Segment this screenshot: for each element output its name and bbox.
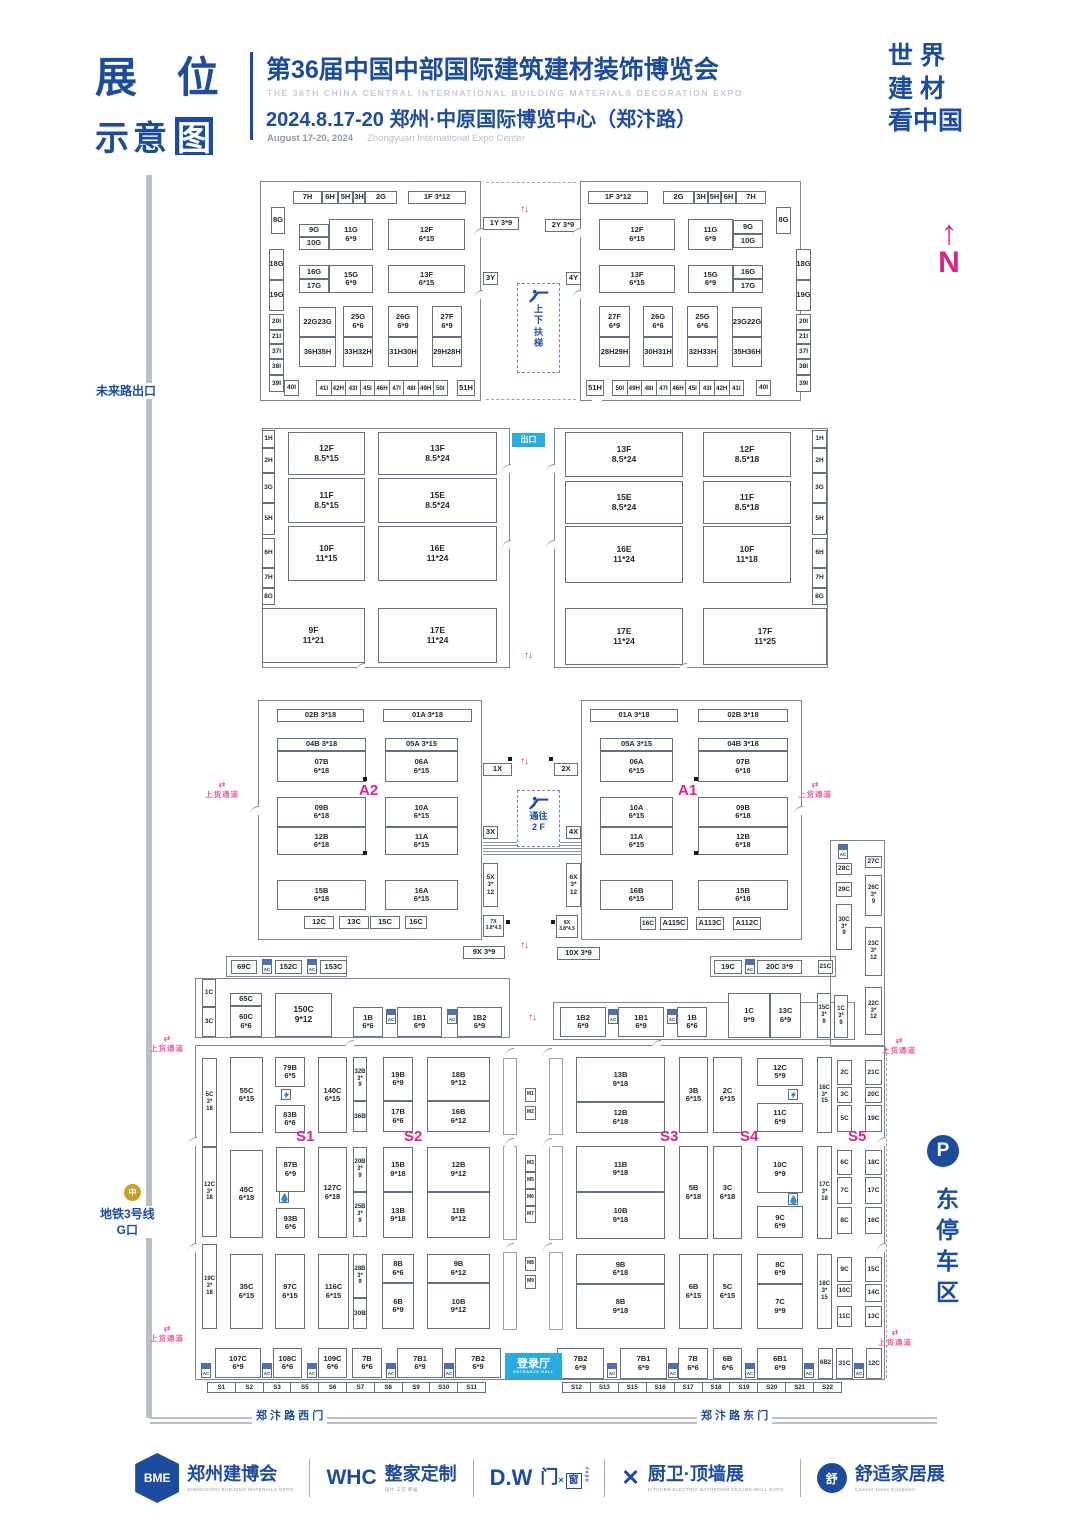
booth-7h: 7H xyxy=(736,191,766,204)
booth-45i: 45I xyxy=(685,380,701,396)
booth-69c: 69C xyxy=(231,960,257,974)
updown-arrows-icon: ↑↓ xyxy=(520,204,528,215)
sign-sublabel: ENTRANCE HALL xyxy=(513,1370,554,1374)
booth-8c: 8C xyxy=(837,1207,852,1234)
footer-logo-x: ✕厨卫·顶墙展KITCHEN ELECTRIC BATHROOM CEILING… xyxy=(621,1464,783,1492)
booth-49h: 49H xyxy=(418,380,434,396)
booth-6x: 6X 3* 12 xyxy=(566,863,581,907)
booth-21i: 21I xyxy=(796,330,811,344)
power-icon xyxy=(281,1089,291,1100)
booth-s21: S21 xyxy=(785,1382,814,1393)
booth-65c: 65C xyxy=(230,993,262,1006)
booth-40i: 40I xyxy=(756,380,771,396)
ac-unit-icon: AC xyxy=(386,1363,396,1378)
booth-25g: 25G 6*6 xyxy=(687,306,718,337)
booth-05a-3-15: 05A 3*15 xyxy=(385,738,458,751)
booth-51h: 51H xyxy=(586,380,604,396)
zone-label: A2 xyxy=(359,782,378,799)
booth-50i: 50I xyxy=(433,380,449,396)
booth-01a-3-18: 01A 3*18 xyxy=(590,709,678,722)
booth-15c: 15C xyxy=(865,1257,882,1282)
booth-row: S12S13S15S16S17S18S19S20S21S22 xyxy=(563,1382,842,1393)
booth-16g: 16G xyxy=(299,265,329,279)
map-label: 未来路出口 xyxy=(92,383,160,399)
booth-1b: 1B 6*6 xyxy=(677,1007,707,1037)
booth-3h: 3H xyxy=(694,191,708,204)
booth-10x-3-9: 10X 3*9 xyxy=(557,947,600,960)
freight-aisle-label: ⇄上货通道 xyxy=(150,1324,184,1343)
booth-5x: 5X 3* 12 xyxy=(483,863,498,907)
escalator-box: 通往 2 F xyxy=(517,790,560,847)
dw-logo-text: D.W xyxy=(490,1465,533,1491)
pillar xyxy=(363,851,367,855)
booth-1b2: 1B2 6*9 xyxy=(457,1007,502,1037)
freight-aisle-label: ⇄上货通道 xyxy=(150,1034,184,1053)
booth-6c: 6C xyxy=(837,1150,852,1175)
booth-107c: 107C 6*9 xyxy=(215,1348,261,1378)
ac-unit-icon: AC xyxy=(854,1363,864,1378)
booth-3x: 3X xyxy=(483,826,498,839)
booth-11f: 11F 8.5*18 xyxy=(703,481,791,524)
ac-unit-icon: AC xyxy=(307,959,317,974)
booth-2g: 2G xyxy=(365,191,397,204)
bme-logo-icon: BME xyxy=(135,1453,179,1503)
booth-48i: 48I xyxy=(641,380,657,396)
booth-m8: M8 xyxy=(525,1257,536,1271)
booth-s12: S12 xyxy=(562,1382,591,1393)
booth-7c: 7C xyxy=(837,1177,852,1204)
booth-2h: 2H xyxy=(812,448,827,473)
booth-9b: 9B 6*18 xyxy=(576,1254,665,1284)
footer-logo-subtext: 设计 工艺 新居 xyxy=(385,1487,457,1492)
door-arc-icon xyxy=(546,540,555,549)
booth-13c: 13C xyxy=(339,916,369,929)
booth-09b: 09B 6*18 xyxy=(277,797,366,827)
booth-10b: 10B 9*12 xyxy=(427,1283,490,1329)
ac-unit-icon: AC xyxy=(447,1009,457,1024)
booth-22g23g: 22G23G xyxy=(299,307,336,337)
booth-12f: 12F 6*15 xyxy=(599,219,675,250)
booth-16e: 16E 11*24 xyxy=(378,526,497,581)
booth-2x: 2X xyxy=(554,763,578,776)
booth-42h: 42H xyxy=(331,380,347,396)
ac-unit-icon: AC xyxy=(745,959,755,974)
booth-5h: 5H xyxy=(338,191,353,204)
booth-s6: S6 xyxy=(318,1382,347,1393)
ac-unit-icon: AC xyxy=(745,1363,755,1378)
toilet-icon xyxy=(592,400,602,402)
booth-12f: 12F 8.5*15 xyxy=(288,432,365,475)
booth-17c: 17C xyxy=(865,1177,882,1204)
booth-9x-3-9: 9X 3*9 xyxy=(463,946,505,959)
booth-116c: 116C 6*15 xyxy=(318,1254,349,1329)
freight-label-text: 上货通道 xyxy=(150,1334,184,1343)
booth-7h: 7H xyxy=(293,191,322,204)
booth-06a: 06A 6*15 xyxy=(600,751,673,782)
booth-1b2: 1B2 6*9 xyxy=(560,1007,606,1037)
booth-20c: 20C xyxy=(865,1087,882,1103)
booth-41i: 41I xyxy=(316,380,332,396)
booth-11c: 11C 6*9 xyxy=(757,1103,803,1132)
toilet-icon xyxy=(442,398,452,400)
booth-29c: 29C xyxy=(836,882,852,897)
booth-25b: 25B 3* 9 xyxy=(353,1192,367,1237)
floor-plan-page: 展 位 示意图 第36届中国中部国际建筑建材装饰博览会 THE 36TH CHI… xyxy=(0,0,1080,1527)
booth-7x: 7X 3.8*4.5 xyxy=(483,915,504,937)
booth-s3: S3 xyxy=(263,1382,292,1393)
booth-17c: 17C 3* 18 xyxy=(817,1146,832,1239)
booth-26c: 26C 3* 9 xyxy=(865,875,882,916)
door-arc-icon xyxy=(345,1040,354,1049)
booth-27c: 27C xyxy=(865,856,882,868)
booth-6b2: 6B2 xyxy=(818,1348,833,1379)
booth-1h: 1H xyxy=(812,430,827,448)
booth-7b: 7B 6*6 xyxy=(678,1348,708,1379)
booth-36b: 36B xyxy=(353,1101,367,1132)
booth-39i: 39I xyxy=(796,375,811,392)
pillar xyxy=(508,757,512,761)
booth-s16: S16 xyxy=(646,1382,675,1393)
booth-12f: 12F 6*15 xyxy=(388,219,465,250)
freight-aisle-label: ⇄上货通道 xyxy=(798,780,832,799)
booth-10f: 10F 11*18 xyxy=(703,526,791,583)
booth-17e: 17E 11*24 xyxy=(565,608,683,665)
map-label: 郑 汴 路 西 门 xyxy=(252,1409,327,1424)
footer-logo-dw: D.W门×窗expo xyxy=(490,1465,589,1491)
ac-unit-icon: AC xyxy=(667,1009,677,1024)
booth-23g22g: 23G22G xyxy=(732,307,762,337)
booth-152c: 152C xyxy=(275,960,302,974)
booth-49h: 49H xyxy=(627,380,643,396)
booth-1c: 1C xyxy=(202,979,216,1007)
booth-18g: 18G xyxy=(269,249,284,280)
parking-icon: P xyxy=(927,1135,959,1167)
booth-a113c: A113C xyxy=(696,917,724,930)
booth-9c: 9C 6*9 xyxy=(757,1206,803,1238)
footer-divider xyxy=(800,1459,801,1497)
footer-logo-whc: WHC整家定制设计 工艺 新居 xyxy=(326,1464,456,1492)
water-icon xyxy=(279,1191,289,1203)
power-icon xyxy=(788,1089,798,1100)
booth-20c-3-9: 20C 3*9 xyxy=(757,960,802,974)
footer-divider xyxy=(473,1459,474,1497)
booth-28h29h: 28H29H xyxy=(599,337,630,367)
booth-15e: 15E 8.5*24 xyxy=(378,478,497,523)
water-icon xyxy=(788,1193,798,1205)
booth-7b2: 7B2 6*9 xyxy=(455,1348,501,1378)
booth-07b: 07B 6*18 xyxy=(277,751,366,782)
booth-127c: 127C 6*18 xyxy=(318,1147,347,1238)
corridor xyxy=(549,1252,563,1330)
booth-21i: 21I xyxy=(269,330,284,344)
booth-a115c: A115C xyxy=(660,917,688,930)
corridor xyxy=(549,1058,563,1135)
booth-9f: 9F 11*21 xyxy=(262,608,365,663)
booth-11f: 11F 8.5*15 xyxy=(288,478,365,523)
booth-26g: 26G 6*6 xyxy=(643,306,673,337)
pillar xyxy=(506,920,510,924)
booth-16b: 16B 6*15 xyxy=(600,880,673,910)
booth-37i: 37I xyxy=(796,344,811,359)
footer-logo-subtext: Comfort Home Exhibition xyxy=(855,1487,945,1492)
booth-28b: 28B 3* 9 xyxy=(353,1254,367,1298)
booth-01a-3-18: 01A 3*18 xyxy=(383,709,472,722)
booth-13f: 13F 8.5*24 xyxy=(565,432,683,477)
booth-109c: 109C 6*6 xyxy=(318,1348,347,1378)
booth-19g: 19G xyxy=(796,280,811,311)
map-label: 东 停 车 区 xyxy=(936,1184,959,1308)
booth-15g: 15G 6*9 xyxy=(329,265,373,293)
ac-unit-icon: AC xyxy=(262,959,272,974)
door-arc-icon xyxy=(188,1243,197,1252)
booth-16b: 16B 6*12 xyxy=(427,1101,490,1132)
booth-3g: 3G xyxy=(812,473,827,503)
booth-m3: M3 xyxy=(525,1155,536,1172)
zone-label: S5 xyxy=(848,1128,866,1145)
ac-unit-icon: AC xyxy=(804,1363,814,1378)
booth-21c: 21C xyxy=(865,1060,882,1085)
booth-8g: 8G xyxy=(812,588,827,605)
freight-arrows-icon: ⇄ xyxy=(150,1034,184,1044)
booth-2h: 2H xyxy=(262,448,275,473)
booth-33h32h: 33H32H xyxy=(343,337,373,367)
booth-s1: S1 xyxy=(207,1382,236,1393)
booth-1h: 1H xyxy=(262,430,275,448)
booth-60c: 60C 6*6 xyxy=(230,1006,262,1037)
freight-arrows-icon: ⇄ xyxy=(878,1328,912,1338)
freight-label-text: 上货通道 xyxy=(878,1338,912,1347)
updown-arrows-icon: ↑↓ xyxy=(520,940,528,951)
entrance-hall-sign: 登录厅ENTRANCE HALL xyxy=(505,1353,562,1379)
booth-32b: 32B 3* 9 xyxy=(353,1057,367,1101)
pillar xyxy=(551,920,555,924)
booth-02b-3-18: 02B 3*18 xyxy=(698,709,788,722)
booth-11a: 11A 6*15 xyxy=(600,827,673,855)
booth-13b: 13B 9*18 xyxy=(576,1057,665,1102)
booth-12b: 12B 6*18 xyxy=(576,1102,665,1133)
booth-8c: 8C 6*9 xyxy=(757,1254,803,1284)
booth-45c: 45C 6*18 xyxy=(230,1150,263,1238)
escalator-label: 上 下 扶 梯 xyxy=(534,304,543,349)
ac-unit-icon: AC xyxy=(201,1363,211,1378)
booth-s5: S5 xyxy=(290,1382,319,1393)
booth-row: S1S2S3S5S6S7S8S9S10S11 xyxy=(208,1382,486,1393)
freight-label-text: 上货通道 xyxy=(150,1044,184,1053)
escalator-box: 上 下 扶 梯 xyxy=(517,283,560,373)
pillar xyxy=(549,757,553,761)
booth-s7: S7 xyxy=(346,1382,375,1393)
booth-45i: 45I xyxy=(360,380,376,396)
booth-10a: 10A 6*15 xyxy=(600,797,673,827)
booth-23c: 23C 3* 12 xyxy=(865,927,882,976)
booth-1c: 1C 3* 9 xyxy=(834,995,848,1038)
booth-6h: 6H xyxy=(322,191,338,204)
ac-unit-icon: AC xyxy=(307,1363,317,1378)
toilet-icon xyxy=(631,683,641,685)
ac-unit-icon: AC xyxy=(608,1009,618,1024)
updown-arrows-icon: ↑↓ xyxy=(520,756,528,767)
booth-2c: 2C xyxy=(837,1060,852,1085)
booth-19c: 19C xyxy=(714,960,742,974)
booth-13c: 13C 6*9 xyxy=(770,993,801,1038)
whc-logo-text: WHC xyxy=(326,1466,376,1490)
booth-09b: 09B 6*18 xyxy=(698,797,788,827)
booth-1f-3-12: 1F 3*12 xyxy=(408,191,466,204)
booth-7h: 7H xyxy=(812,568,827,588)
home-logo-icon: 舒 xyxy=(817,1463,847,1493)
booth-10a: 10A 6*15 xyxy=(385,797,458,827)
booth-s11: S11 xyxy=(457,1382,486,1393)
booth-41i: 41I xyxy=(729,380,745,396)
booth-10c: 10C xyxy=(837,1284,852,1297)
booth-18c: 18C 3* 15 xyxy=(817,1254,832,1329)
booth-1x: 1X xyxy=(483,763,512,776)
ac-unit-icon: AC xyxy=(838,844,848,859)
booth-06a: 06A 6*15 xyxy=(385,751,458,782)
escalator-icon xyxy=(528,288,550,304)
booth-16c: 16C 3* 15 xyxy=(817,1057,832,1133)
pillar xyxy=(694,851,698,855)
booth-m1: M1 xyxy=(525,1088,536,1102)
booth-42h: 42H xyxy=(714,380,730,396)
booth-30b: 30B xyxy=(353,1298,367,1329)
booth-8g: 8G xyxy=(262,588,275,605)
booth-6h: 6H xyxy=(262,538,275,568)
booth-12c: 12C 5*9 xyxy=(757,1058,803,1086)
dw-expo-text: expo xyxy=(583,1467,589,1483)
booth-15c: 15C xyxy=(370,916,400,929)
booth-2g: 2G xyxy=(663,191,694,204)
zone-label: S2 xyxy=(404,1128,422,1145)
booth-s10: S10 xyxy=(429,1382,458,1393)
booth-43i: 43I xyxy=(699,380,715,396)
footer-logo-name: 整家定制 xyxy=(385,1464,457,1485)
booth-m6: M6 xyxy=(525,1189,536,1206)
booth-7b1: 7B1 6*9 xyxy=(397,1348,443,1378)
booth-12b: 12B 9*12 xyxy=(427,1147,490,1192)
booth-9g: 9G xyxy=(299,224,329,237)
booth-13b: 13B 9*18 xyxy=(383,1192,413,1238)
booth-79b: 79B 6*5 xyxy=(275,1057,305,1087)
exit-sign: 出口 xyxy=(512,433,545,447)
booth-12c: 12C 3* 18 xyxy=(202,1147,217,1237)
map-label: 郑 汴 路 东 门 xyxy=(697,1409,772,1424)
booth-16c: 16C xyxy=(865,1207,882,1234)
toilet-icon xyxy=(594,917,604,919)
booth-11g: 11G 6*9 xyxy=(688,219,733,250)
stair-hatch xyxy=(483,851,581,852)
booth-17f: 17F 11*25 xyxy=(703,608,827,665)
booth-s19: S19 xyxy=(729,1382,758,1393)
booth-32h33h: 32H33H xyxy=(687,337,718,367)
booth-3c: 3C xyxy=(837,1087,852,1103)
booth-6h: 6H xyxy=(812,538,827,568)
booth-15b: 15B 6*18 xyxy=(698,880,788,910)
booth-153c: 153C xyxy=(320,960,347,974)
booth-20b: 20B 3* 9 xyxy=(353,1147,367,1192)
booth-29h28h: 29H28H xyxy=(432,337,462,367)
footer-logo-subtext: ZHENGZHOU BUILDING MATERIALS EXPO xyxy=(187,1487,293,1492)
booth-07b: 07B 6*18 xyxy=(698,751,788,782)
booth-30c: 30C 3* 9 xyxy=(836,904,852,950)
booth-05a-3-15: 05A 3*15 xyxy=(600,738,673,751)
booth-a112c: A112C xyxy=(733,917,761,930)
booth-1b1: 1B1 6*9 xyxy=(618,1007,664,1037)
booth-12b: 12B 6*18 xyxy=(698,827,788,855)
booth-04b-3-18: 04B 3*18 xyxy=(698,738,788,751)
booth-12c: 12C xyxy=(304,916,334,929)
booth-47i: 47I xyxy=(389,380,405,396)
booth-35c: 35C 6*15 xyxy=(230,1254,263,1329)
booth-5h: 5H xyxy=(262,503,275,535)
booth-18b: 18B 9*12 xyxy=(427,1057,490,1101)
booth-18c: 18C xyxy=(865,1150,882,1175)
booth-150c: 150C 9*12 xyxy=(275,993,332,1037)
booth-40i: 40I xyxy=(284,380,299,396)
booth-48i: 48I xyxy=(403,380,419,396)
booth-7b: 7B 6*6 xyxy=(352,1348,382,1378)
booth-39i: 39I xyxy=(269,375,284,392)
booth-2c: 2C 6*15 xyxy=(713,1057,742,1133)
stair-hatch xyxy=(483,854,581,855)
booth-s8: S8 xyxy=(374,1382,403,1393)
booth-4y: 4Y xyxy=(566,272,581,285)
booth-s15: S15 xyxy=(618,1382,647,1393)
booth-9c: 9C xyxy=(837,1257,852,1282)
booth-50i: 50I xyxy=(612,380,628,396)
footer-logo-name: 郑州建博会 xyxy=(187,1464,293,1485)
booth-10b: 10B 9*18 xyxy=(576,1192,665,1239)
booth-19c: 19C xyxy=(865,1105,882,1132)
booth-46h: 46H xyxy=(374,380,390,396)
booth-02b-3-18: 02B 3*18 xyxy=(277,709,364,722)
booth-3y: 3Y xyxy=(483,272,498,285)
sign-label: 出口 xyxy=(521,436,537,445)
freight-label-text: 上货通道 xyxy=(798,790,832,799)
booth-47i: 47I xyxy=(656,380,672,396)
ac-unit-icon: AC xyxy=(262,1363,272,1378)
booth-14c: 14C xyxy=(865,1284,882,1302)
booth-3c: 3C 6*18 xyxy=(713,1146,742,1239)
footer-divider xyxy=(309,1459,310,1497)
booth-15e: 15E 8.5*24 xyxy=(565,481,683,524)
booth-19c: 19C 3* 18 xyxy=(202,1244,217,1329)
stair-hatch xyxy=(483,848,581,849)
map-label: 地铁3号线 G口 xyxy=(96,1206,159,1238)
ac-unit-icon: AC xyxy=(444,1363,454,1378)
booth-27f: 27F 6*9 xyxy=(599,306,630,337)
booth-12f: 12F 8.5*18 xyxy=(703,432,791,477)
escalator-icon xyxy=(528,795,550,811)
door-arc-icon xyxy=(652,1040,661,1049)
freight-arrows-icon: ⇄ xyxy=(882,1036,916,1046)
booth-8g: 8G xyxy=(776,207,791,234)
booth-31c: 31C xyxy=(836,1348,853,1379)
booth-s2: S2 xyxy=(235,1382,264,1393)
booth-27f: 27F 6*9 xyxy=(432,306,462,337)
booth-11g: 11G 6*9 xyxy=(329,219,373,250)
zone-label: A1 xyxy=(678,782,697,799)
booth-s18: S18 xyxy=(702,1382,731,1393)
booth-3h: 3H xyxy=(353,191,365,204)
dotted-boundary xyxy=(486,399,576,400)
booth-7b1: 7B1 6*9 xyxy=(620,1348,667,1379)
booth-10f: 10F 11*15 xyxy=(288,526,365,581)
booth-6h: 6H xyxy=(721,191,736,204)
booth-31h30h: 31H30H xyxy=(388,337,418,367)
booth-38i: 38I xyxy=(796,359,811,375)
door-arc-icon xyxy=(188,1137,197,1146)
